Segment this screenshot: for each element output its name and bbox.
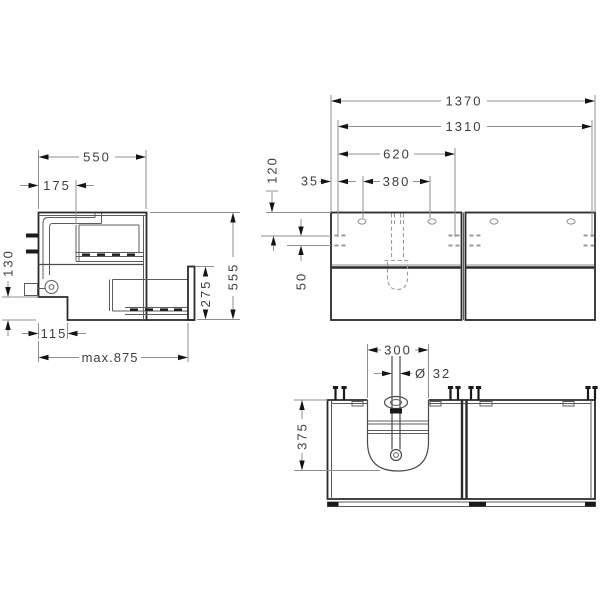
dim-115: 115: [22, 323, 86, 341]
dim-label-380: 380: [383, 174, 411, 189]
dim-380: 380: [363, 174, 430, 218]
cabinet-right: [466, 213, 596, 321]
dim-label-max875: max.875: [82, 350, 139, 365]
drain-pipe-hidden: [385, 214, 411, 290]
pin: [341, 386, 346, 400]
open-drawer: [110, 267, 195, 321]
dim-label-375: 375: [295, 422, 310, 450]
dim-label-120: 120: [265, 156, 280, 184]
dim-50: 50: [287, 219, 331, 290]
pin: [455, 386, 460, 400]
mounting-rail-dashes: [335, 236, 595, 246]
side-view: 550 175 130 115: [1, 150, 241, 366]
lower-drawer-runner-ticks: [130, 308, 182, 310]
wall-fixing-bolts: [26, 234, 39, 254]
dim-label-1310: 1310: [446, 119, 483, 134]
dim-pipe-diameter: Ø 32: [374, 366, 451, 381]
dimension-drawing: 550 175 130 115: [0, 0, 600, 600]
upper-drawer-runner-ticks: [82, 254, 135, 256]
dim-label-175: 175: [43, 178, 71, 193]
pin: [592, 386, 597, 400]
pipe-clamp-band: [390, 409, 402, 414]
dim-620: 620: [338, 147, 455, 238]
siphon-hidden: [388, 262, 408, 290]
dim-1370: 1370: [331, 94, 595, 213]
dim-label-275: 275: [198, 280, 213, 308]
dim-label-620: 620: [383, 147, 411, 162]
dim-275: 275: [195, 267, 214, 320]
cabinet-side-outline: [39, 213, 147, 321]
dim-label-550: 550: [83, 150, 111, 165]
dim-label-pipe-diameter: Ø 32: [415, 366, 451, 381]
dim-label-50: 50: [294, 272, 309, 290]
pin: [333, 386, 338, 400]
tap-holes: [358, 219, 575, 224]
mounting-pins: [333, 386, 598, 400]
trap-elbow: [45, 281, 58, 294]
dim-label-35: 35: [301, 175, 319, 189]
pin: [468, 386, 473, 400]
dim-label-1370: 1370: [446, 94, 483, 109]
upper-drawer-section: [76, 225, 144, 262]
plinth-strip: [328, 502, 596, 507]
drawer-front-panel: [188, 267, 195, 321]
dim-35: 35: [301, 175, 356, 189]
drawing-canvas: 550 175 130 115: [0, 0, 600, 600]
front-view: 1370 1310 620 380: [261, 94, 595, 321]
pin: [585, 386, 590, 400]
dim-label-300: 300: [384, 343, 412, 358]
bottom-view: 300 Ø 32 375: [294, 343, 598, 507]
cabinet-left: [331, 213, 462, 321]
dim-120: 120: [261, 156, 331, 251]
wall-outlet-box: [25, 284, 38, 296]
pin: [476, 386, 481, 400]
pin: [448, 386, 453, 400]
dim-label-115: 115: [41, 326, 68, 341]
dim-130: 130: [1, 249, 39, 336]
dim-label-555: 555: [226, 263, 241, 291]
dim-label-130: 130: [1, 249, 16, 277]
